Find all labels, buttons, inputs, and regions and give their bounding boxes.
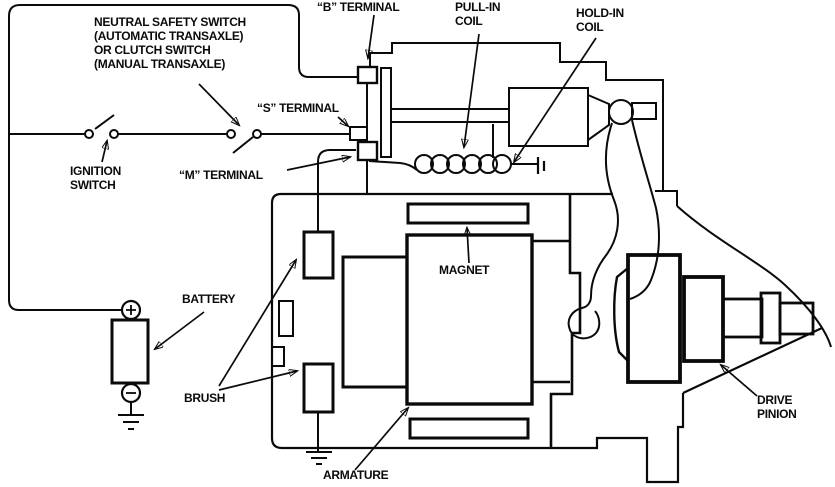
brush-arrow-lower: [219, 371, 297, 390]
bearing-block: [532, 241, 570, 382]
battery-label: BATTERY: [182, 293, 235, 307]
commutator: [343, 257, 407, 387]
neutral-safety-switch-label: NEUTRAL SAFETY SWITCH (AUTOMATIC TRANSAX…: [94, 15, 246, 71]
contact-plate: [381, 68, 391, 157]
coil-feed-wire: [369, 161, 400, 163]
brush-block-top: [304, 232, 333, 278]
pinion-shaft: [723, 299, 762, 337]
ignition-switch-arrow: [102, 141, 107, 162]
brush-arrow-upper: [219, 260, 296, 386]
brush-label: BRUSH: [184, 392, 225, 406]
hold-in-coil-label: HOLD-IN COIL: [576, 7, 624, 34]
hold-in-coil-ground-icon: [538, 157, 544, 174]
motor-ground-icon: [306, 452, 332, 464]
battery-arrow: [155, 312, 204, 349]
drive-pinion-arrow: [721, 365, 757, 396]
b-terminal-arrow: [368, 15, 374, 58]
armature-arrow: [355, 408, 408, 470]
plunger-taper: [588, 95, 609, 140]
m-terminal-label: “M” TERMINAL: [179, 169, 263, 183]
lever-pivot-knob: [609, 100, 633, 124]
plunger-rod: [391, 109, 509, 122]
brush-holder-upper: [279, 301, 293, 336]
ignition-switch-label: IGNITION SWITCH: [70, 165, 121, 192]
plunger: [391, 88, 656, 146]
b-terminal-block: [358, 67, 377, 83]
ignition-switch-blade: [95, 115, 114, 129]
ignition-switch-symbol: [85, 115, 118, 138]
s-terminal-block: [350, 127, 367, 140]
magnet-bottom-bar: [410, 419, 528, 438]
armature-label: ARMATURE: [323, 469, 388, 483]
drive-pinion-gear: [684, 277, 723, 361]
pull-in-coil-winding: [400, 155, 544, 174]
shaft-collar: [761, 293, 780, 343]
s-terminal-label: “S” TERMINAL: [257, 102, 339, 116]
lever-right-edge: [630, 120, 659, 299]
battery-symbol: [112, 301, 148, 429]
circuit-wires: [9, 5, 493, 310]
solenoid-terminals: [350, 67, 391, 160]
b-terminal-label: “B” TERMINAL: [317, 1, 399, 15]
starter-circuit-drawing: [0, 0, 835, 487]
pull-in-coil-arrow: [464, 34, 479, 147]
plus-icon: [126, 305, 136, 315]
diagram-canvas: NEUTRAL SAFETY SWITCH (AUTOMATIC TRANSAX…: [0, 0, 835, 487]
clutch-collar-taper: [614, 268, 628, 361]
neutral-safety-switch-blade: [233, 137, 253, 153]
magnet-top-bar: [408, 204, 528, 223]
pivot-block: [632, 103, 656, 119]
motor-internals: [272, 204, 532, 464]
pull-in-coil-label: PULL-IN COIL: [455, 1, 500, 28]
lever-left-edge: [591, 123, 618, 296]
drive-pinion-label: DRIVE PINION: [757, 394, 797, 421]
end-frame: [551, 195, 580, 448]
magnet-label: MAGNET: [439, 264, 489, 278]
magnet-arrow: [467, 228, 469, 263]
brush-block-bottom: [304, 364, 333, 412]
plunger-body: [509, 88, 588, 146]
neutral-safety-arrow: [199, 84, 239, 125]
m-terminal-block: [358, 142, 377, 160]
battery-body: [112, 320, 148, 383]
hold-in-coil-arrow: [514, 38, 596, 162]
brush-holder-lower: [272, 347, 284, 366]
battery-ground-icon: [118, 415, 144, 429]
drive-assembly: [614, 255, 813, 382]
neutral-safety-switch-symbol: [227, 130, 261, 153]
s-terminal-arrow: [338, 117, 348, 126]
